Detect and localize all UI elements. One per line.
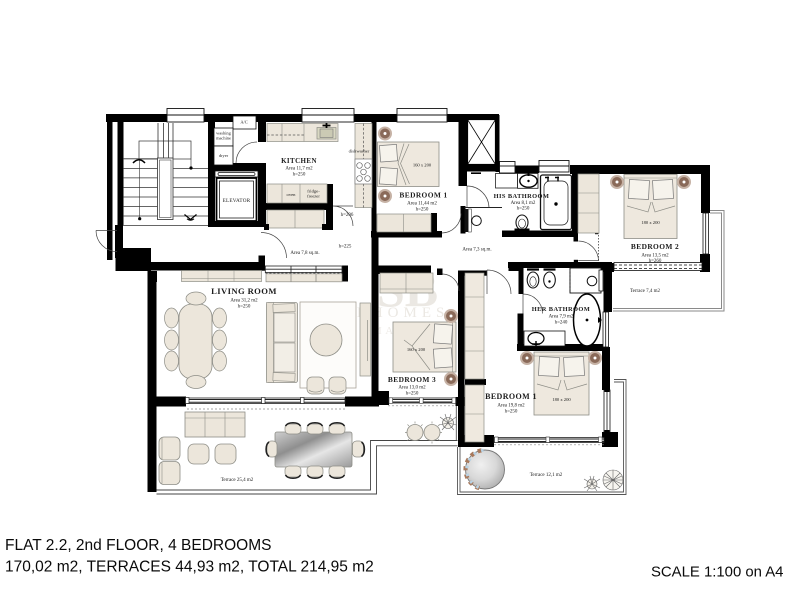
svg-text:Area 13,5 m2: Area 13,5 m2 xyxy=(641,254,669,259)
svg-text:Area 11,7 m2: Area 11,7 m2 xyxy=(285,167,313,172)
svg-text:HER BATHROOM: HER BATHROOM xyxy=(532,306,590,313)
svg-text:BEDROOM 1: BEDROOM 1 xyxy=(485,392,537,401)
svg-text:h=250: h=250 xyxy=(505,410,518,415)
svg-text:DBHOMES: DBHOMES xyxy=(341,305,449,321)
svg-text:BEDROOM 2: BEDROOM 2 xyxy=(631,242,679,251)
svg-text:Area 7,3 sq.m.: Area 7,3 sq.m. xyxy=(462,248,491,253)
svg-text:Area 13,0 m2: Area 13,0 m2 xyxy=(398,386,426,391)
svg-text:Terrace 7,4 m2: Terrace 7,4 m2 xyxy=(630,289,661,294)
svg-text:Area 7,8 sq.m.: Area 7,8 sq.m. xyxy=(290,251,319,256)
svg-text:h=250: h=250 xyxy=(517,207,530,212)
svg-text:oven: oven xyxy=(287,192,297,197)
svg-text:h=260: h=260 xyxy=(649,259,662,264)
svg-text:FLAT 2.2, 2nd FLOOR, 4 BEDROOM: FLAT 2.2, 2nd FLOOR, 4 BEDROOMS xyxy=(5,537,271,554)
svg-text:h=240: h=240 xyxy=(555,321,568,326)
svg-text:180 x 200: 180 x 200 xyxy=(641,220,660,225)
svg-text:Area 7,9 m2: Area 7,9 m2 xyxy=(549,315,574,320)
svg-text:dryer: dryer xyxy=(219,153,229,158)
svg-text:h=225: h=225 xyxy=(339,245,352,250)
svg-text:h=250: h=250 xyxy=(416,208,429,213)
svg-text:Area 31,2 m2: Area 31,2 m2 xyxy=(230,299,258,304)
svg-text:LIVING ROOM: LIVING ROOM xyxy=(211,286,277,296)
svg-text:Terrace 12,1 m2: Terrace 12,1 m2 xyxy=(530,473,563,478)
svg-text:freezer: freezer xyxy=(307,194,320,199)
svg-text:h=206: h=206 xyxy=(341,213,354,218)
svg-text:A/C: A/C xyxy=(240,120,247,125)
svg-text:170,02 m2, TERRACES 44,93 m2,: 170,02 m2, TERRACES 44,93 m2, TOTAL 214,… xyxy=(5,559,374,576)
svg-text:h=250: h=250 xyxy=(293,173,306,178)
svg-text:BEDROOM 1: BEDROOM 1 xyxy=(399,191,447,200)
svg-text:160 x 200: 160 x 200 xyxy=(407,347,426,352)
svg-text:180 x 200: 180 x 200 xyxy=(552,397,571,402)
svg-text:Terrace 25,4 m2: Terrace 25,4 m2 xyxy=(221,478,254,483)
svg-text:dishwasher: dishwasher xyxy=(349,149,370,154)
svg-text:h=250: h=250 xyxy=(238,305,251,310)
svg-text:160 x 200: 160 x 200 xyxy=(413,163,432,168)
svg-text:Area 11,44 m2: Area 11,44 m2 xyxy=(407,201,437,206)
svg-text:HIS BATHROOM: HIS BATHROOM xyxy=(494,193,550,200)
svg-text:BEDROOM 3: BEDROOM 3 xyxy=(388,375,436,384)
svg-text:SCALE 1:100 on A4: SCALE 1:100 on A4 xyxy=(651,565,783,581)
svg-text:Area 19,8 m2: Area 19,8 m2 xyxy=(497,404,525,409)
svg-text:Area 8,1 m2: Area 8,1 m2 xyxy=(511,201,536,206)
svg-text:machine: machine xyxy=(216,136,231,141)
svg-text:KITCHEN: KITCHEN xyxy=(281,157,317,165)
svg-text:ELEVATOR: ELEVATOR xyxy=(223,198,251,204)
svg-text:h=250: h=250 xyxy=(406,392,419,397)
